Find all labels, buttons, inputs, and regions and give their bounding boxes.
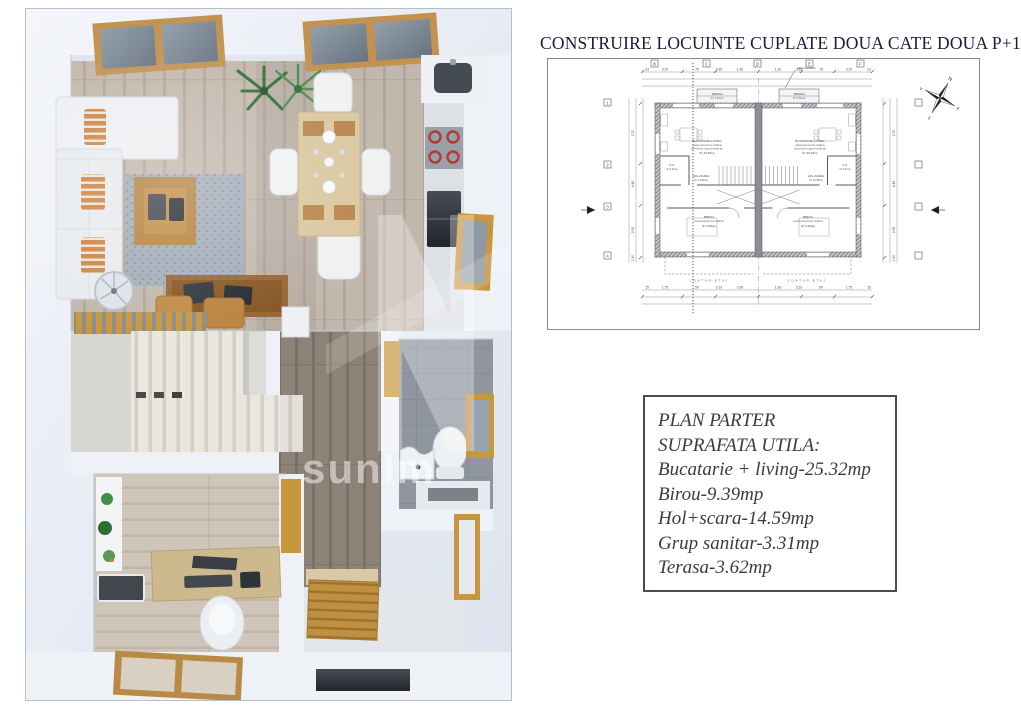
office-door [281, 479, 301, 553]
svg-text:3.20: 3.20 [662, 68, 669, 72]
svg-text:pereti-tavan zugravit lavabil: pereti-tavan zugravit lavabil alb [691, 147, 723, 150]
svg-text:G.S.: G.S. [669, 163, 674, 167]
svg-text:2.70: 2.70 [631, 130, 635, 137]
svg-text:S= 14.59mp: S= 14.59mp [694, 179, 708, 182]
svg-text:1.20: 1.20 [775, 68, 782, 72]
svg-text:75: 75 [819, 68, 823, 72]
svg-text:15: 15 [867, 286, 871, 290]
svg-text:G.S.: G.S. [842, 163, 847, 167]
svg-text:3.35: 3.35 [716, 68, 723, 72]
office-window [113, 651, 243, 701]
contur-etaj-label: CONTUR ETAJ [787, 279, 826, 283]
svg-text:23: 23 [867, 68, 871, 72]
svg-text:pardoseala parchet stratificat: pardoseala parchet stratificat [692, 144, 722, 147]
svg-text:BUCATARIE+LIVING: BUCATARIE+LIVING [692, 139, 722, 143]
svg-text:pardoseala parchet stratificat: pardoseala parchet stratificat [793, 220, 823, 223]
svg-text:15: 15 [645, 286, 649, 290]
svg-text:50: 50 [695, 286, 699, 290]
svg-text:1.20: 1.20 [737, 68, 744, 72]
svg-text:75: 75 [695, 68, 699, 72]
svg-text:S= 9.39mp: S= 9.39mp [702, 224, 716, 228]
svg-text:S= 3.31mp: S= 3.31mp [839, 169, 851, 171]
svg-text:S= 25.32mp: S= 25.32mp [699, 151, 715, 155]
plan-level-label: PLAN PARTER [658, 409, 889, 434]
kitchen-sink [434, 63, 472, 93]
svg-text:B: B [653, 62, 656, 67]
svg-text:TERASA: TERASA [793, 92, 805, 96]
office-radiator [98, 575, 144, 601]
area-line-living: Bucatarie + living-25.32mp [658, 458, 889, 483]
svg-text:HOL+SCARA: HOL+SCARA [808, 174, 825, 178]
svg-text:HOL+SCARA: HOL+SCARA [693, 174, 710, 178]
svg-text:pardoseala parchet stratificat: pardoseala parchet stratificat [694, 220, 724, 223]
contur-etaj-label: CONTUR ETAJ [689, 279, 728, 283]
svg-text:4.45: 4.45 [631, 181, 635, 188]
svg-text:S= 9.39mp: S= 9.39mp [801, 224, 815, 228]
entry-window-slot [316, 669, 410, 691]
svg-text:BUCATARIE+LIVING: BUCATARIE+LIVING [795, 139, 825, 143]
listing-composite: sunIm CONSTRUIRE LOCUINTE CUPLATE DOUA C… [0, 0, 1021, 720]
svg-text:2.55: 2.55 [631, 227, 635, 234]
area-line-hall: Hol+scara-14.59mp [658, 507, 889, 532]
svg-text:3.10: 3.10 [716, 286, 723, 290]
svg-text:BIROU: BIROU [803, 215, 813, 219]
svg-text:S= 3.62mp: S= 3.62mp [793, 96, 806, 100]
svg-text:D: D [756, 62, 759, 67]
svg-text:pardoseala parchet stratificat: pardoseala parchet stratificat [795, 144, 825, 147]
area-summary-box: PLAN PARTER SUPRAFATA UTILA: Bucatarie +… [643, 395, 897, 592]
svg-text:1.50: 1.50 [631, 255, 635, 262]
office-desk [151, 547, 281, 601]
svg-text:1.60: 1.60 [737, 286, 744, 290]
svg-text:1.75: 1.75 [662, 286, 669, 290]
office-chair [200, 596, 244, 650]
svg-text:F: F [859, 62, 862, 67]
svg-text:tabla metalica: tabla metalica [797, 66, 816, 70]
svg-text:4.45: 4.45 [892, 181, 896, 188]
floor-plan-3d-render: sunIm [25, 8, 512, 701]
svg-text:3.10: 3.10 [796, 286, 803, 290]
svg-text:2.70: 2.70 [892, 130, 896, 137]
svg-text:23: 23 [645, 68, 649, 72]
watermark-text: sunIm [302, 445, 436, 492]
usable-area-label: SUPRAFATA UTILA: [658, 434, 889, 459]
blueprint-drawing: N E S V 23 3.20 75 3.35 1.20 1.20 [547, 58, 980, 332]
svg-text:C: C [705, 62, 708, 67]
svg-text:pereti-tavan zugravit lavabil: pereti-tavan zugravit lavabil alb [794, 147, 826, 150]
svg-text:1.50: 1.50 [892, 255, 896, 262]
svg-text:S= 3.62mp: S= 3.62mp [711, 96, 724, 100]
area-line-terrace: Terasa-3.62mp [658, 556, 889, 581]
area-line-office: Birou-9.39mp [658, 483, 889, 508]
svg-text:1.75: 1.75 [846, 286, 853, 290]
blueprint-title: CONSTRUIRE LOCUINTE CUPLATE DOUA CATE DO… [540, 33, 1000, 54]
svg-text:TERASA: TERASA [711, 92, 723, 96]
area-line-bathroom: Grup sanitar-3.31mp [658, 532, 889, 557]
svg-text:3.20: 3.20 [846, 68, 853, 72]
svg-text:S= 3.31mp: S= 3.31mp [666, 169, 678, 171]
svg-text:50: 50 [819, 286, 823, 290]
doormat [307, 580, 379, 640]
svg-text:1.60: 1.60 [775, 286, 782, 290]
svg-text:BIROU: BIROU [704, 215, 714, 219]
svg-text:2.55: 2.55 [892, 227, 896, 234]
svg-text:S= 14.59mp: S= 14.59mp [809, 179, 823, 182]
svg-text:S= 25.32mp: S= 25.32mp [802, 151, 818, 155]
